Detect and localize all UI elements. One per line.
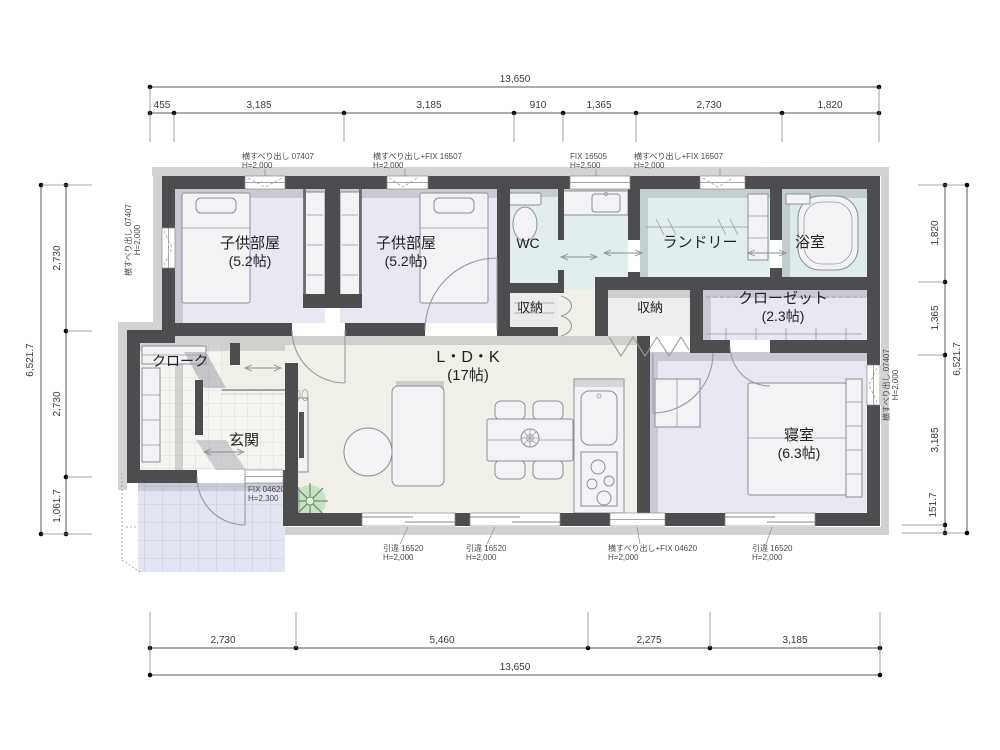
dim-top-seg1: 3,185 (246, 100, 271, 111)
dim-right-seg0: 1,820 (930, 220, 941, 245)
ann-bottom-kitchen: 横すべり出し+FIX 04620 (608, 543, 698, 553)
floor-plan-drawing: 子供部屋 (5.2帖) 子供部屋 (5.2帖) WC ランドリー 浴室 収納 収… (0, 0, 1000, 750)
label-child2-size: (5.2帖) (385, 253, 428, 269)
dim-bottom: 2,730 5,460 2,275 3,185 13,650 (148, 612, 883, 677)
dim-right-seg1: 1,365 (930, 305, 941, 330)
ann-entrance-fix: FIX 04620 (248, 485, 285, 494)
dim-top-seg3: 910 (530, 100, 547, 111)
dim-top-seg0: 455 (154, 100, 171, 111)
dim-right-seg3: 151.7 (928, 492, 939, 517)
ann-bottom-ldk2-h: H=2,000 (466, 553, 497, 562)
label-closet: クローゼット (738, 290, 828, 307)
ann-left-child1: 横すべり出し 07407 (123, 204, 133, 276)
ann-bottom-bedroom-h: H=2,000 (752, 553, 783, 562)
label-child2: 子供部屋 (376, 235, 436, 252)
ann-bottom-bedroom: 引違 16520 (752, 543, 793, 553)
ann-right-bedroom-h: H=2,000 (891, 369, 900, 400)
window-bedroom-south (725, 513, 815, 526)
dim-top-seg6: 1,820 (817, 100, 842, 111)
dim-top-seg5: 2,730 (696, 100, 721, 111)
closet-child1 (305, 192, 325, 296)
ann-bottom-ldk2: 引違 16520 (466, 543, 507, 553)
ann-top-laundry: 横すべり出し+FIX 16507 (634, 151, 724, 161)
ann-top-child1: 横すべり出し 07407 (242, 151, 314, 161)
ann-bottom-ldk1-h: H=2,000 (383, 553, 414, 562)
refrigerator-icon (655, 379, 700, 427)
dim-right: 1,820 1,365 3,185 151.7 6,521.7 (902, 183, 969, 536)
label-ldk-size: (17帖) (447, 367, 489, 384)
ann-top-child2-h: H=2,000 (373, 161, 404, 170)
dim-top-seg2: 3,185 (416, 100, 441, 111)
dim-bottom-seg3: 3,185 (782, 635, 807, 646)
ann-top-laundry-h: H=2,000 (634, 161, 665, 170)
floor-plan-canvas: 子供部屋 (5.2帖) 子供部屋 (5.2帖) WC ランドリー 浴室 収納 収… (0, 0, 1000, 750)
round-table-icon (344, 428, 392, 476)
dim-bottom-seg2: 2,275 (636, 635, 661, 646)
dim-left-seg0: 2,730 (52, 245, 63, 270)
window-child1-left (162, 228, 175, 268)
dim-left-seg1: 2,730 (52, 391, 63, 416)
ann-bottom-ldk1: 引違 16520 (383, 543, 424, 553)
dim-bottom-seg0: 2,730 (210, 635, 235, 646)
label-bath: 浴室 (795, 234, 825, 251)
dim-bottom-total: 13,650 (500, 662, 531, 673)
ann-bottom-kitchen-h: H=2,000 (608, 553, 639, 562)
label-laundry: ランドリー (662, 234, 737, 251)
ann-top-child1-h: H=2,000 (242, 161, 273, 170)
dim-top: 13,650 455 3,185 3,185 910 1,365 2,730 1… (148, 74, 882, 142)
label-storage1: 収納 (517, 300, 543, 315)
dim-right-total: 6,521.7 (952, 342, 963, 376)
dim-bottom-seg1: 5,460 (429, 635, 454, 646)
label-closet-size: (2.3帖) (762, 308, 805, 324)
washbasin-icon (560, 191, 628, 215)
label-bedroom-size: (6.3帖) (778, 445, 821, 461)
label-child1-size: (5.2帖) (229, 253, 272, 269)
window-child1-top (245, 176, 285, 189)
dim-left-total: 6,521.7 (25, 343, 36, 377)
window-ldk-south1 (362, 513, 455, 526)
dim-right-seg2: 3,185 (930, 427, 941, 452)
window-ldk-south2 (470, 513, 560, 526)
label-storage2: 収納 (637, 300, 663, 315)
dim-left-seg2: 1,061.7 (52, 489, 63, 523)
window-entrance-fix (245, 470, 283, 483)
ann-right-bedroom: 横すべり出し 07407 (881, 349, 891, 421)
ann-top-fix-h: H=2,500 (570, 161, 601, 170)
label-ldk: L・D・K (436, 349, 499, 366)
hotpot-icon (521, 429, 539, 447)
window-kitchen-south (610, 513, 665, 526)
window-corridor-fix (570, 176, 630, 189)
ann-top-fix: FIX 16505 (570, 152, 607, 161)
window-laundry-top (700, 176, 745, 189)
dim-top-total: 13,650 (500, 74, 531, 85)
label-cloak: クローク (152, 353, 208, 369)
window-bedroom-right (867, 365, 880, 405)
dim-left: 6,521.7 2,730 2,730 1,061.7 (25, 183, 92, 537)
closet-child2 (340, 192, 360, 296)
window-child2-top (387, 176, 428, 189)
label-child1: 子供部屋 (220, 235, 280, 252)
ann-entrance-fix-h: H=2,300 (248, 494, 279, 503)
ann-top-child2: 横すべり出し+FIX 16507 (373, 151, 463, 161)
kitchen-icon (574, 379, 624, 513)
dim-top-seg4: 1,365 (586, 100, 611, 111)
island-counter-icon (392, 381, 444, 486)
label-bedroom: 寝室 (784, 426, 814, 444)
label-entrance: 玄関 (229, 432, 259, 449)
label-wc: WC (516, 235, 539, 251)
ann-left-child1-h: H=2,000 (133, 224, 142, 255)
